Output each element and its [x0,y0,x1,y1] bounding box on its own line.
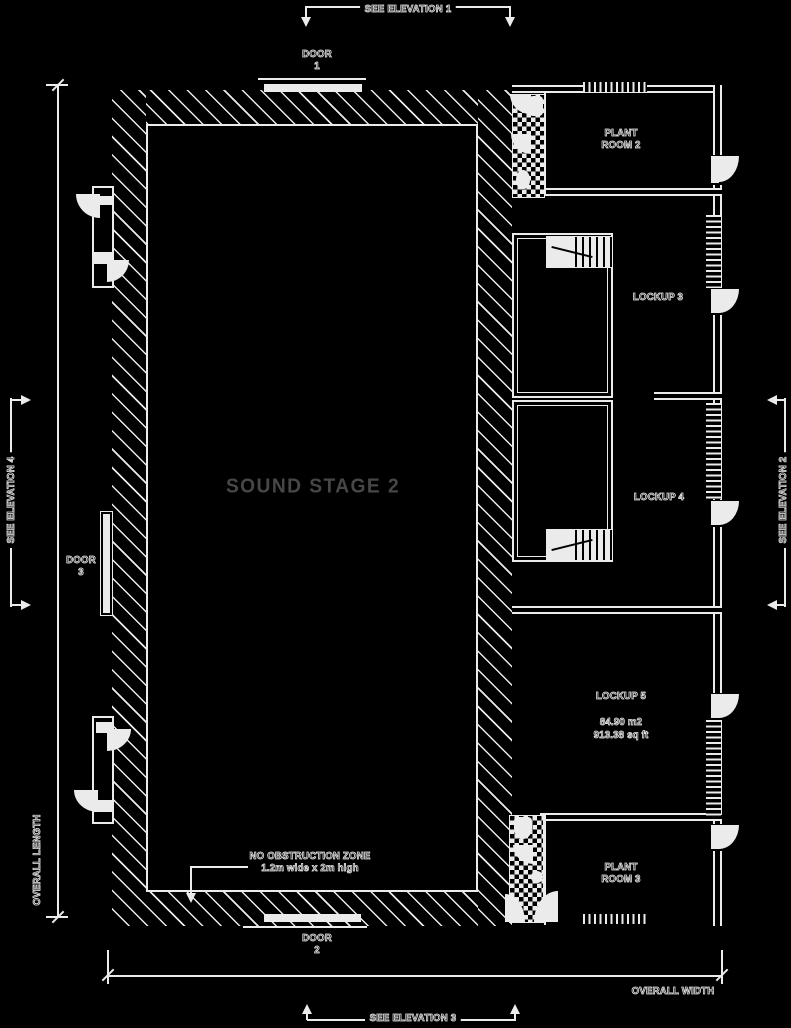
door-2-leaf [264,914,361,922]
see-elevation-4-label: SEE ELEVATION 4 [5,452,17,548]
elevation-arrow-icon [762,395,777,405]
stair-treads-icon [575,237,612,267]
door-3-label: DOOR3 [66,554,96,578]
stage-wall-left-hatch [112,90,146,926]
sink-icon [531,871,543,883]
wall-lockup4-lockup5 [512,606,722,614]
wc-top-wall [544,92,546,196]
wall-lockup3-lockup4 [654,392,722,400]
louvre-icon [706,720,721,816]
door-leaf [711,501,719,525]
elevation-arrow-icon [505,17,515,32]
door-leaf [711,825,719,849]
overall-length-label: OVERALL LENGTH [31,815,43,906]
dim-width-line [108,975,722,977]
door-swing-icon [719,501,739,525]
plant-room-2-label: PLANTROOM 2 [601,127,640,151]
door-2-label: DOOR2 [302,932,332,956]
stage-wall-top-hatch [112,90,512,124]
door-leaf [711,694,719,718]
no-obstruction-note: NO OBSTRUCTION ZONE1.2m wide x 2m high [249,850,370,874]
lockup-4-label: LOCKUP 4 [634,491,684,503]
see-elevation-3-label: SEE ELEVATION 3 [365,1012,461,1024]
stage-floor [146,124,478,892]
door-1-track [258,78,366,80]
door-1-leaf [264,84,362,92]
sound-stage-label: SOUND STAGE 2 [226,476,400,499]
floor-plan-canvas: SOUND STAGE 2 DOOR1 DOOR2 DOOR3 NO OBSTR… [0,0,791,1028]
louvre-icon [706,215,721,288]
lockup-3-stairs [546,236,613,268]
elevation-arrow-icon [21,600,36,610]
no-obstruction-leader-v [190,866,192,896]
door-swing-icon [719,156,739,182]
elevation-arrow-icon [302,999,312,1014]
dim-length-line [57,85,59,918]
elevation-arrow-icon [21,395,36,405]
dim-width-ext-left [107,950,109,984]
lockup-5-area-sqft: 913.38 sq ft [594,729,649,741]
stage-wall-right-hatch [478,90,512,926]
elevation-arrow-icon [510,999,520,1014]
toilet-icon [514,817,532,839]
door-3-leaf [103,514,110,613]
toilet-icon [529,96,543,116]
wall-lockup5-plant3 [540,813,722,821]
louvre-icon [706,403,721,499]
louvre-icon [583,914,647,924]
lockup-5-area-m2: 84.90 m2 [600,716,642,728]
door-1-label: DOOR1 [302,48,332,72]
door-leaf [96,196,113,205]
louvre-icon [583,82,647,92]
stair-treads-icon [575,530,612,560]
door-swing-icon [719,825,739,849]
plant-room-3-label: PLANTROOM 3 [601,861,640,885]
no-obstruction-leader-h [190,866,248,868]
door-swing-icon [719,694,739,718]
no-obstruction-arrow [186,893,196,908]
dim-width-ext-right [721,950,723,984]
door-leaf [711,156,719,183]
door-swing-icon [719,289,739,313]
door-leaf [711,289,719,313]
lockup-4-stairs [546,529,613,561]
door-2-track [243,926,367,928]
lockup-3-label: LOCKUP 3 [633,291,683,303]
door-leaf [94,800,113,812]
overall-width-label: OVERALL WIDTH [632,985,715,997]
see-elevation-1-label: SEE ELEVATION 1 [360,3,456,15]
see-elevation-2-label: SEE ELEVATION 2 [777,452,789,548]
toilet-icon [516,170,530,189]
elevation-arrow-icon [301,17,311,32]
elevation-arrow-icon [762,600,777,610]
lockup-5-label: LOCKUP 5 [596,690,646,702]
